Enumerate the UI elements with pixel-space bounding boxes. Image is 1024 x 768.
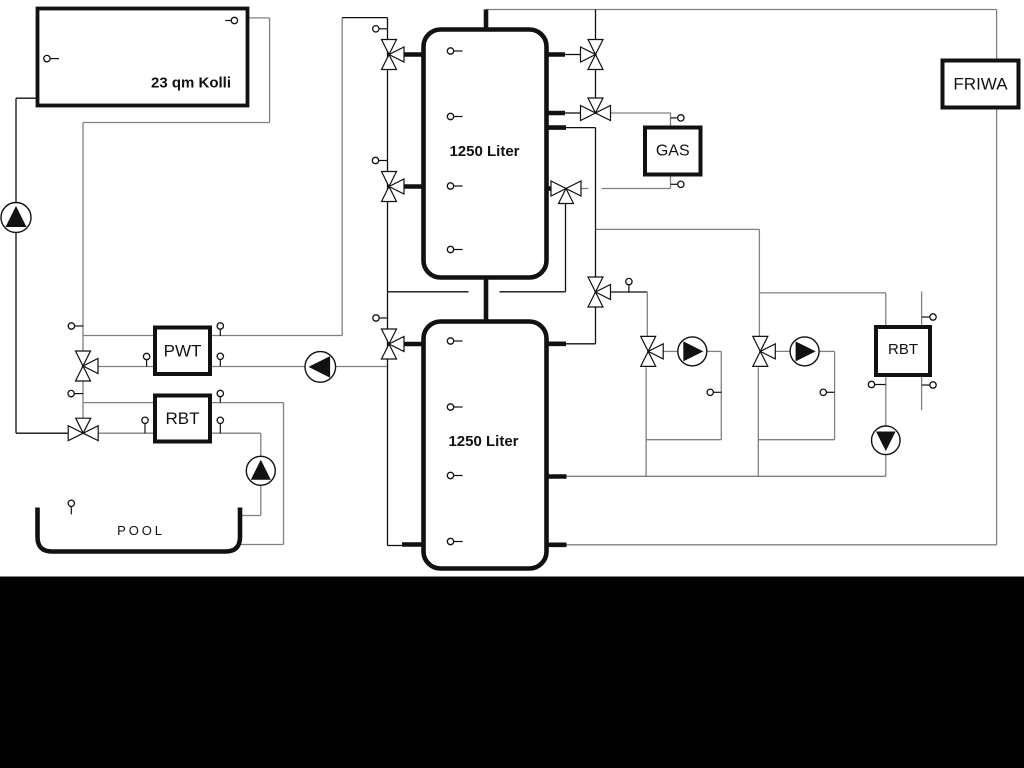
svg-text:1250 Liter: 1250 Liter [448, 433, 518, 450]
svg-text:GAS: GAS [656, 143, 690, 160]
svg-text:23 qm Kolli: 23 qm Kolli [151, 75, 231, 92]
svg-text:FRIWA: FRIWA [953, 75, 1008, 94]
svg-text:RBT: RBT [888, 341, 918, 358]
svg-text:RBT: RBT [166, 409, 200, 428]
svg-text:PWT: PWT [164, 341, 202, 360]
svg-text:POOL: POOL [117, 523, 165, 538]
svg-text:1250 Liter: 1250 Liter [449, 143, 519, 160]
